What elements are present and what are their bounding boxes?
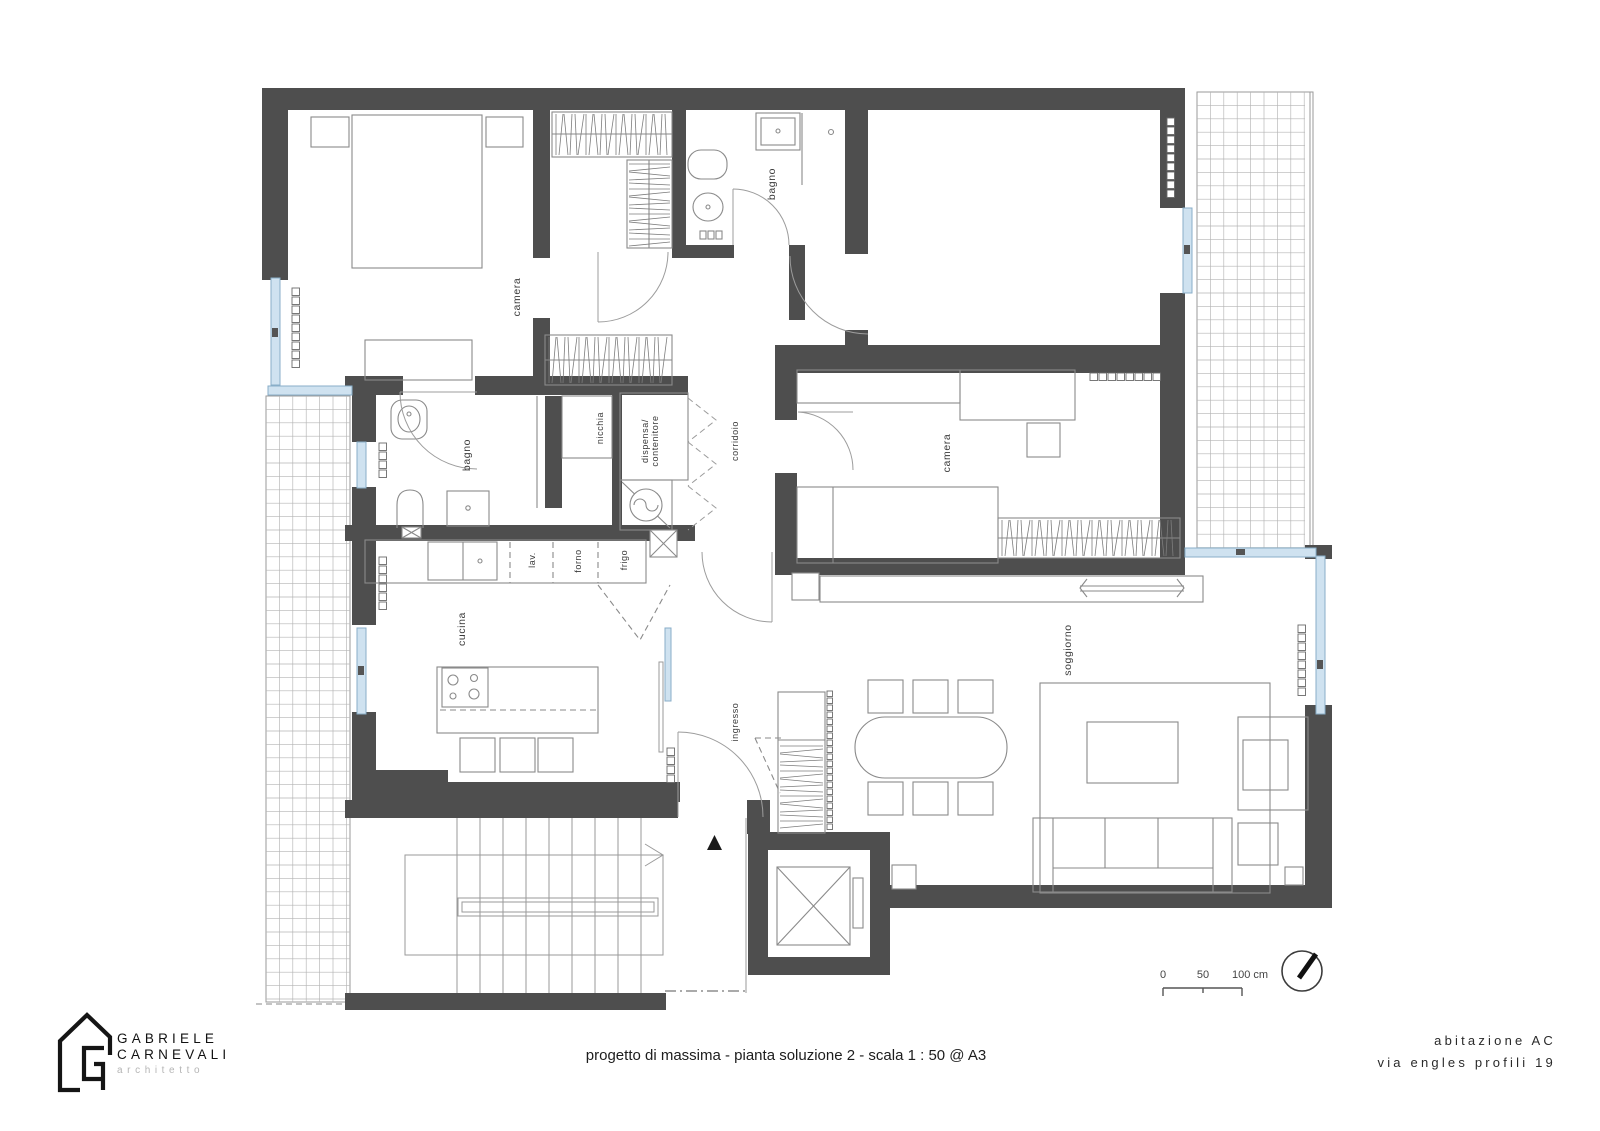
architect-last-name: CARNEVALI — [117, 1047, 230, 1063]
desk — [960, 370, 1075, 420]
walkin-closet — [545, 112, 672, 385]
label-nicchia: nicchia — [595, 412, 605, 444]
side-table — [1238, 823, 1278, 865]
double-bed — [352, 115, 482, 268]
radiator — [1298, 625, 1306, 696]
scale-0: 0 — [1160, 969, 1166, 981]
terrace-right — [1197, 92, 1313, 556]
north-triangle — [707, 835, 722, 850]
washbasin — [756, 113, 800, 150]
chair — [868, 782, 903, 815]
stool — [538, 738, 573, 772]
closet-door-swing — [755, 738, 783, 793]
pillar — [792, 573, 819, 600]
label-frigo: frigo — [619, 550, 629, 571]
label-camera-east: camera — [942, 434, 952, 473]
dresser — [365, 340, 472, 380]
door-swing — [798, 412, 853, 470]
label-corridoio: corridoio — [730, 421, 740, 461]
armchair — [1238, 717, 1308, 810]
chair — [958, 680, 993, 713]
door-swing — [702, 552, 772, 622]
staircase — [405, 818, 748, 993]
label-camera-nw: camera — [512, 278, 522, 317]
bedroom-east-furniture — [797, 370, 1180, 563]
scale-50: 50 — [1197, 969, 1209, 981]
radiator — [667, 748, 675, 783]
radiator — [1090, 373, 1161, 381]
dining-set — [855, 680, 1007, 815]
architect-first-name: GABRIELE — [117, 1031, 230, 1047]
floor-plan-drawing — [0, 0, 1600, 1131]
window — [1316, 556, 1325, 714]
door-swing — [598, 252, 668, 322]
label-lav: lav. — [527, 552, 537, 568]
label-bagno-west: bagno — [462, 439, 472, 471]
window — [1185, 548, 1316, 557]
logo-house-icon — [60, 1015, 110, 1090]
window — [357, 442, 366, 488]
cooktop — [442, 668, 488, 707]
slide-arrows — [1080, 579, 1184, 597]
chair — [958, 782, 993, 815]
project-block: abitazione AC via engles profili 19 — [1378, 1030, 1557, 1074]
elevator-door — [853, 878, 863, 928]
architect-brand: GABRIELE CARNEVALI architetto — [117, 1031, 230, 1078]
label-cucina: cucina — [457, 612, 467, 646]
elevator — [777, 867, 863, 945]
toilet — [397, 490, 423, 528]
sofa — [1033, 818, 1232, 892]
terrace-left — [256, 396, 352, 1004]
fridge-door-swing — [598, 585, 670, 640]
north-indicator — [1282, 951, 1322, 991]
stool — [460, 738, 495, 772]
kitchen-counter — [365, 540, 646, 583]
handrail — [458, 898, 658, 916]
sideboard — [820, 576, 1203, 602]
folding-doors — [688, 398, 716, 530]
tile-grid — [266, 396, 350, 1002]
radiator — [1167, 118, 1175, 198]
kitchen — [365, 527, 677, 772]
dining-table — [855, 717, 1007, 778]
kitchen-island — [437, 667, 598, 733]
window — [268, 386, 352, 395]
niche-box — [892, 865, 916, 889]
bidet — [693, 193, 723, 221]
architect-profession: architetto — [117, 1063, 230, 1078]
stool — [500, 738, 535, 772]
radiator — [292, 288, 300, 368]
rug — [1040, 683, 1270, 893]
door-swing — [733, 189, 789, 245]
drawing-sheet: camera bagno camera bagno nicchia dispen… — [0, 0, 1600, 1131]
coffee-table — [1087, 722, 1178, 783]
project-name: abitazione AC — [1378, 1030, 1557, 1052]
label-ingresso: ingresso — [730, 703, 740, 742]
radiator — [379, 443, 387, 478]
chair — [1027, 423, 1060, 457]
glass-partition — [665, 628, 671, 701]
label-bagno-top: bagno — [767, 168, 777, 200]
label-soggiorno: soggiorno — [1063, 624, 1073, 676]
tile-grid — [1197, 92, 1305, 556]
shower — [447, 491, 489, 526]
drawing-title: progetto di massima - pianta soluzione 2… — [586, 1047, 986, 1064]
bathroom-top-fixtures — [688, 113, 834, 239]
bed — [797, 487, 998, 563]
small-table — [1285, 867, 1303, 885]
project-address: via engles profili 19 — [1378, 1052, 1557, 1074]
chair — [913, 680, 948, 713]
chair — [868, 680, 903, 713]
bathroom-west-fixtures — [391, 396, 612, 528]
shelf — [797, 370, 960, 403]
shower-drain — [829, 130, 834, 135]
scale-bar — [1163, 988, 1242, 996]
nightstand — [311, 117, 349, 147]
scale-100: 100 cm — [1232, 969, 1268, 981]
label-forno: forno — [573, 549, 583, 573]
chair — [913, 782, 948, 815]
label-dispensa: dispensa/contenitore — [640, 415, 660, 466]
bedroom-nw-furniture — [311, 115, 523, 380]
nightstand — [486, 117, 523, 147]
partition — [659, 662, 663, 752]
toilet — [688, 150, 727, 179]
